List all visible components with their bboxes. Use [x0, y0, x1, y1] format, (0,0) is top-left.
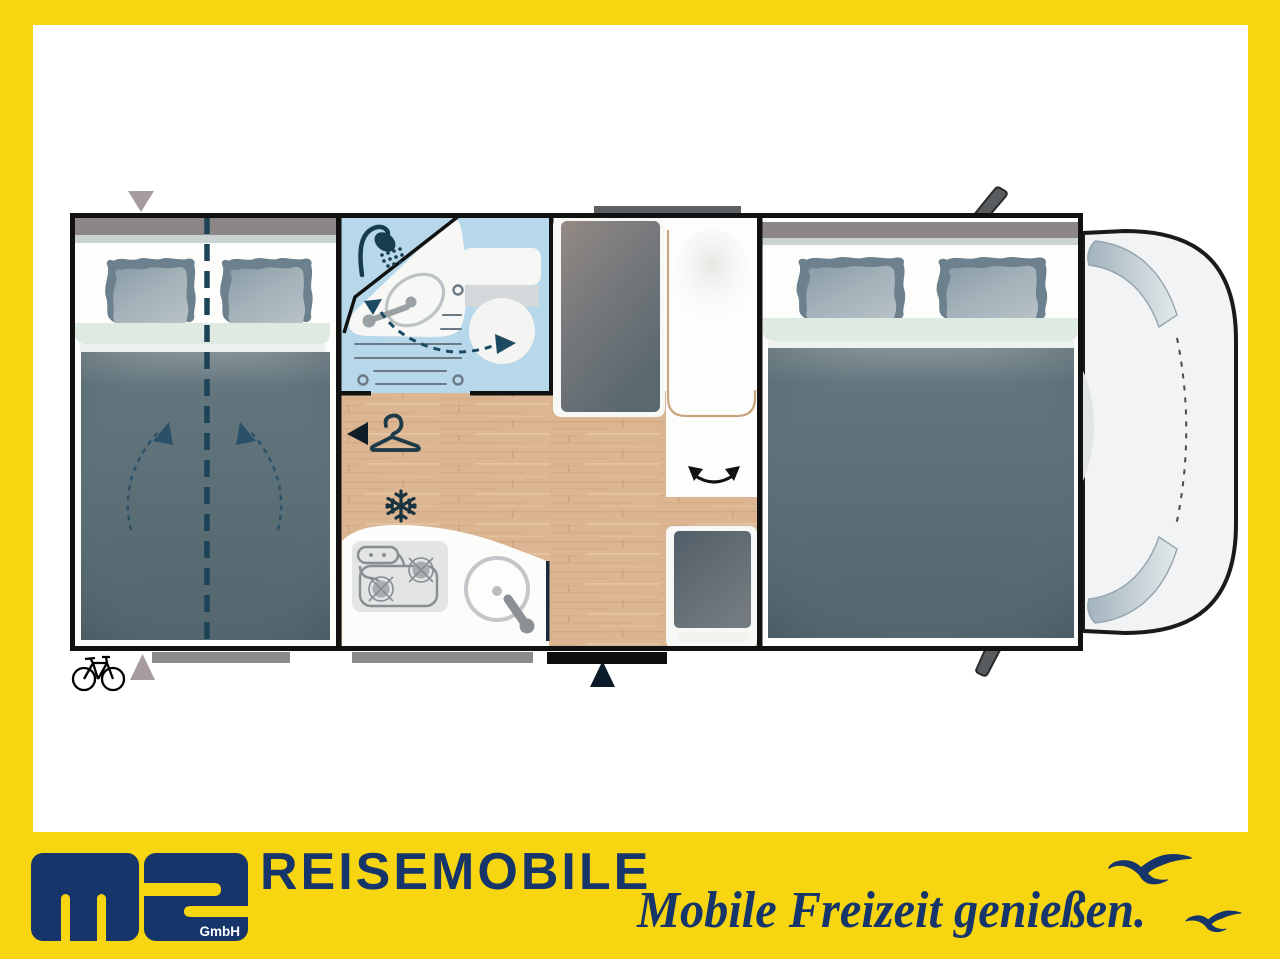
svg-text:GmbH: GmbH: [200, 924, 241, 939]
